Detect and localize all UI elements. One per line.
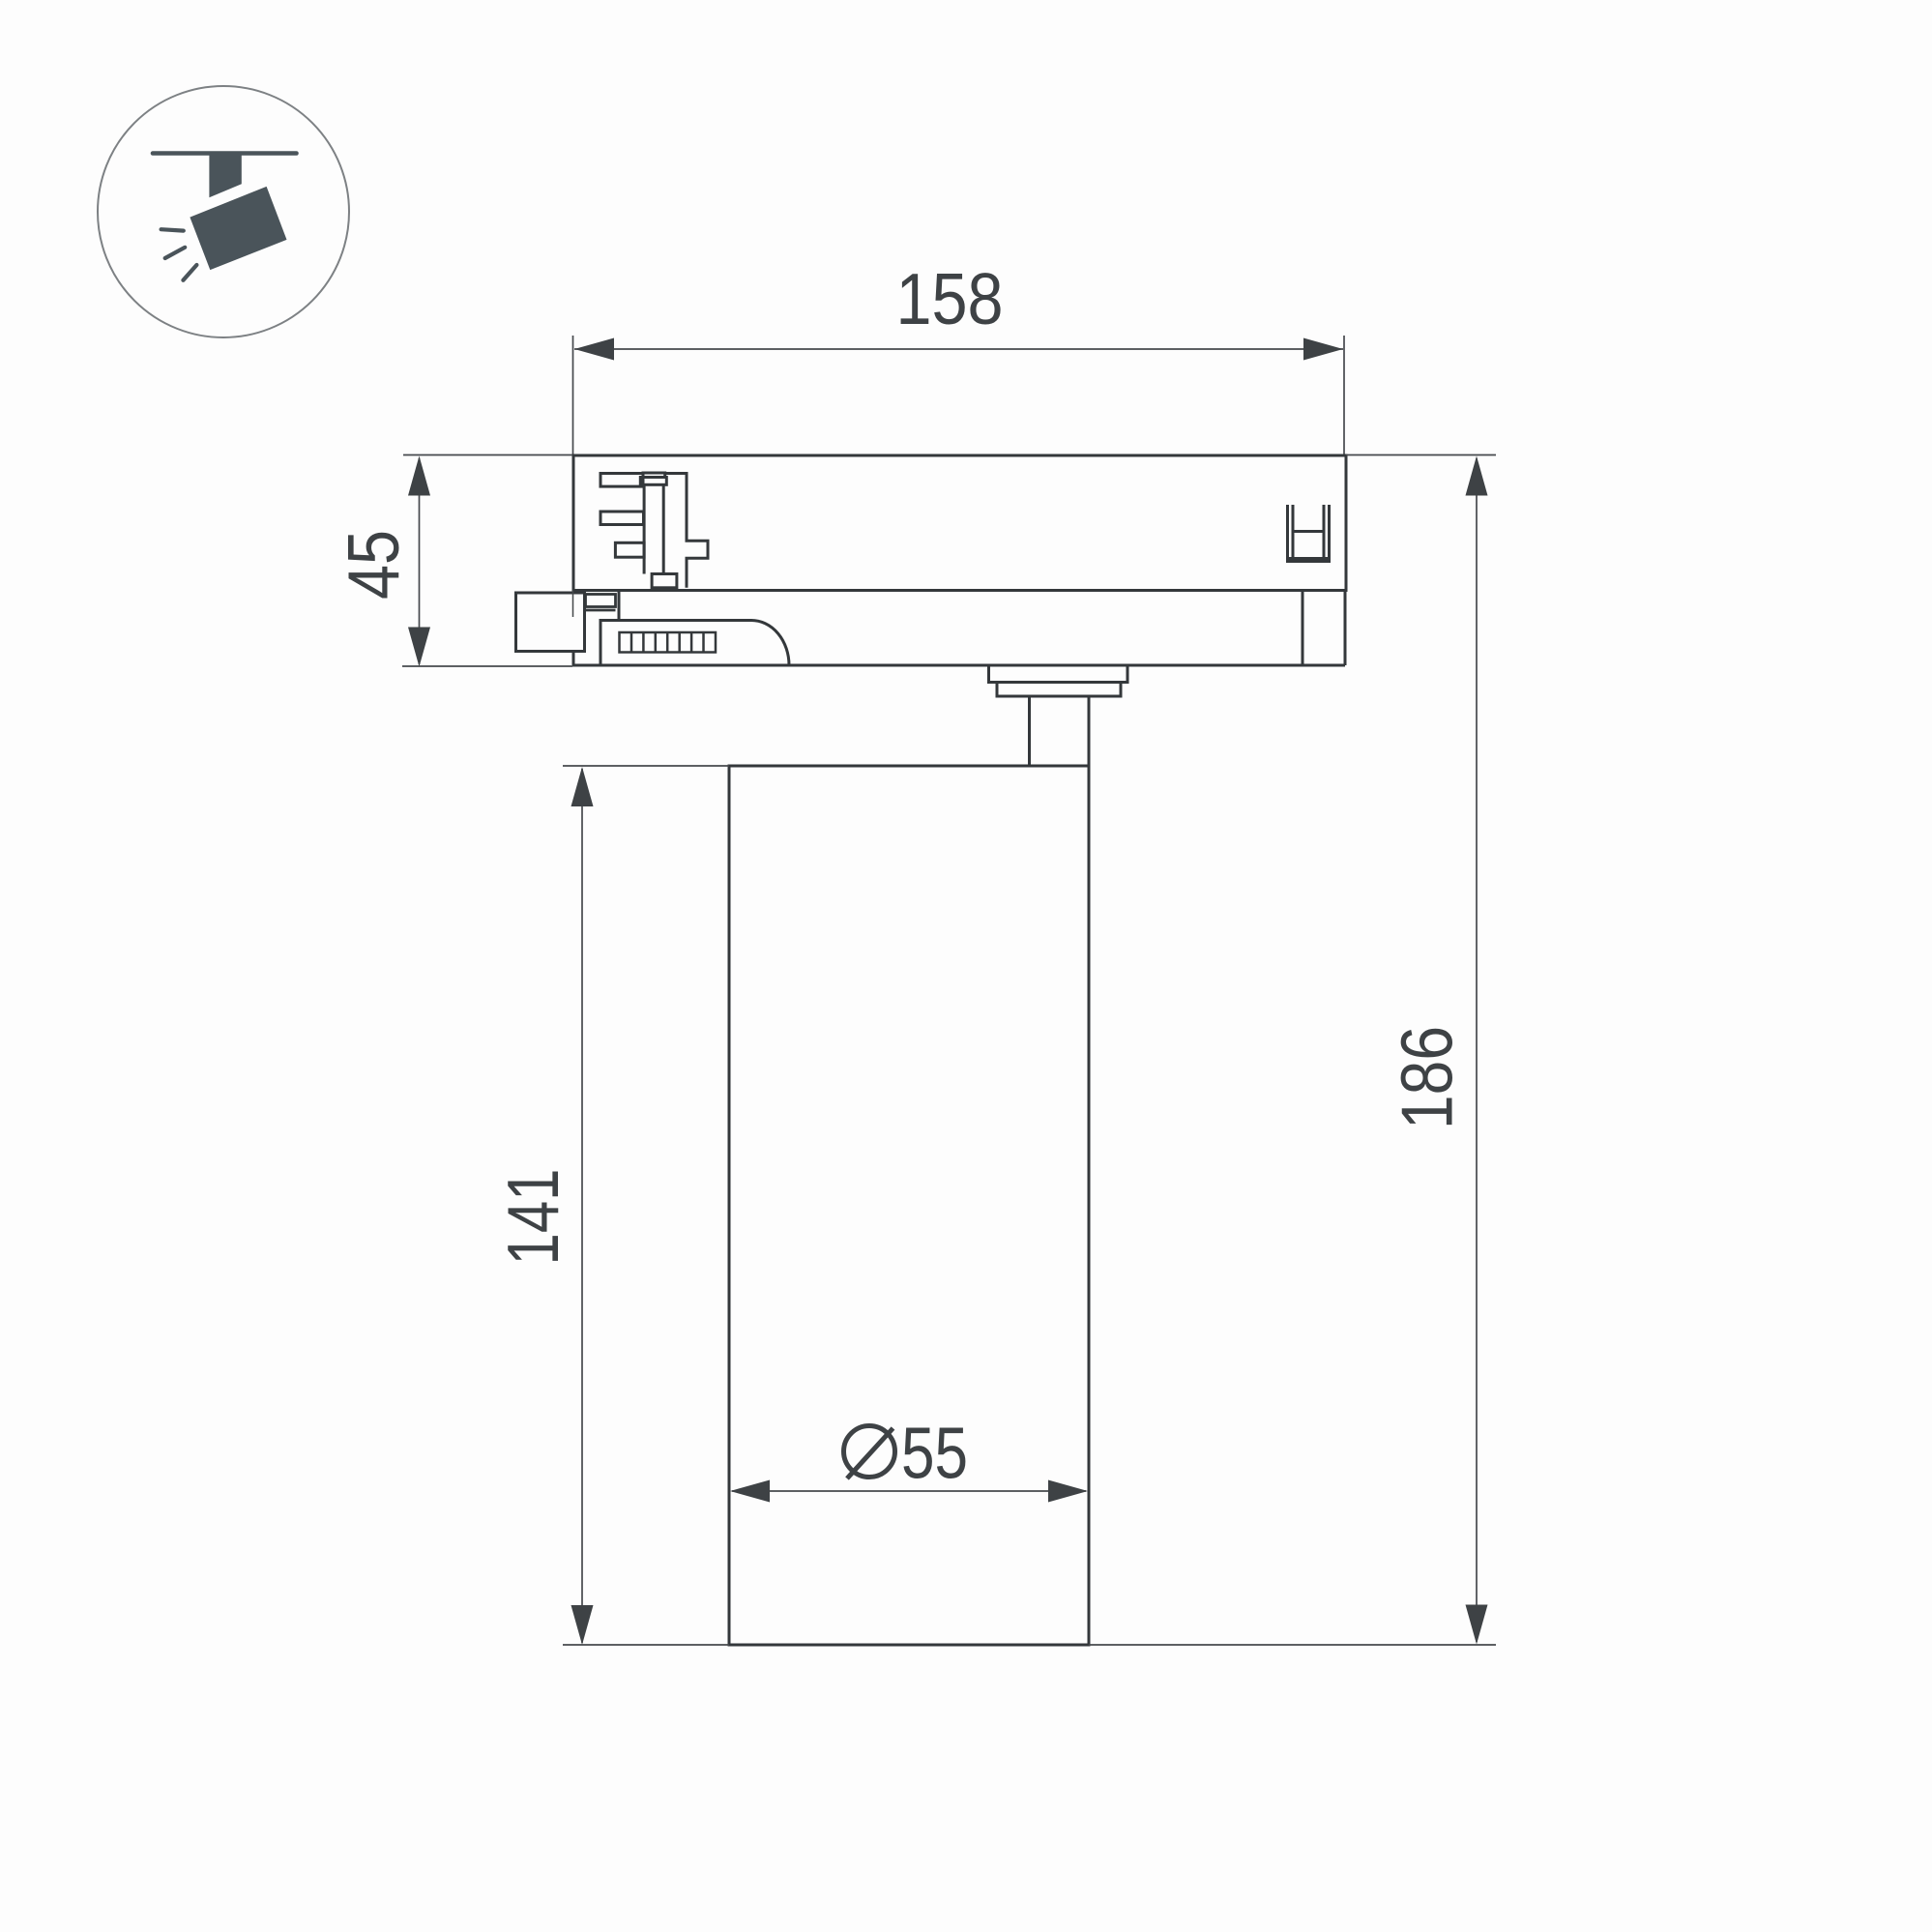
svg-text:186: 186 (1387, 1026, 1468, 1129)
svg-text:55: 55 (901, 1413, 968, 1494)
svg-text:158: 158 (896, 258, 1004, 339)
svg-text:141: 141 (492, 1169, 573, 1266)
svg-text:45: 45 (333, 530, 414, 600)
